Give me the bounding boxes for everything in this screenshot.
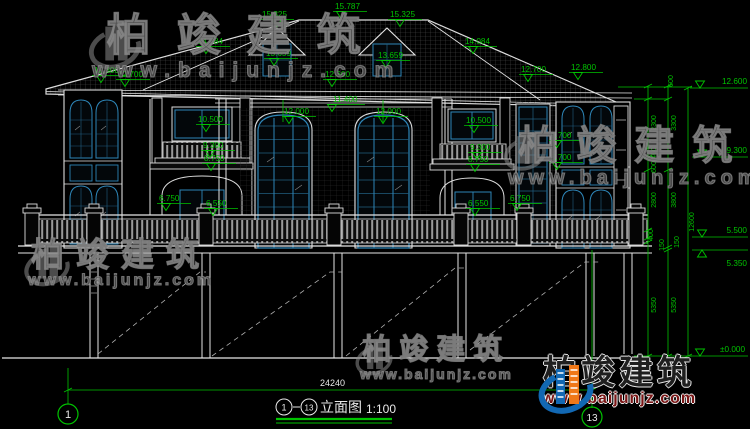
svg-text:6.550: 6.550	[468, 199, 489, 208]
svg-text:15.787: 15.787	[335, 2, 360, 11]
svg-text:5.500: 5.500	[727, 226, 748, 235]
svg-text:10.500: 10.500	[198, 115, 223, 124]
svg-text:24240: 24240	[320, 378, 345, 388]
svg-text:8.700: 8.700	[551, 153, 572, 162]
svg-text:12.600: 12.600	[722, 77, 747, 86]
svg-text:1: 1	[281, 403, 286, 413]
right-edge-elevation-markers: 12.600 9.300 5.500 5.350 ±0.000	[690, 77, 748, 356]
svg-text:8.750: 8.750	[204, 154, 225, 163]
svg-text:1:100: 1:100	[366, 402, 396, 416]
svg-text:13: 13	[305, 404, 314, 413]
svg-text:6.550: 6.550	[206, 199, 227, 208]
terrain-dashed-lines	[98, 262, 600, 356]
svg-text:150: 150	[674, 236, 681, 248]
svg-text:600: 600	[668, 75, 675, 87]
axis-bubble-13: 13	[582, 407, 602, 427]
svg-text:10.500: 10.500	[466, 116, 491, 125]
svg-text:15.325: 15.325	[390, 10, 415, 19]
svg-text:2800: 2800	[651, 192, 658, 208]
svg-text:15.325: 15.325	[262, 10, 287, 19]
svg-text:9.300: 9.300	[470, 143, 491, 152]
svg-text:400: 400	[651, 147, 658, 159]
svg-text:14.084: 14.084	[198, 37, 223, 46]
svg-text:9.300: 9.300	[203, 141, 224, 150]
svg-text:6.750: 6.750	[159, 194, 180, 203]
svg-text:1: 1	[65, 409, 71, 421]
svg-text:600: 600	[651, 161, 658, 173]
svg-text:12600: 12600	[689, 212, 696, 232]
svg-text:11.400: 11.400	[333, 95, 358, 104]
svg-text:13.659: 13.659	[266, 49, 291, 58]
svg-text:5350: 5350	[651, 297, 658, 313]
svg-text:6.750: 6.750	[510, 194, 531, 203]
svg-text:12.000: 12.000	[376, 107, 401, 116]
svg-text:9.700: 9.700	[551, 131, 572, 140]
svg-text:150: 150	[659, 239, 666, 251]
axis-bubble-1: 1	[58, 404, 78, 424]
svg-text:9.300: 9.300	[727, 146, 748, 155]
bottom-dimension: 24240	[64, 250, 596, 408]
svg-text:2300: 2300	[651, 115, 658, 131]
svg-text:12.800: 12.800	[94, 66, 119, 75]
cad-elevation-screenshot: { "colors": { "background": "#000000", "…	[0, 0, 750, 429]
svg-text:3300: 3300	[671, 115, 678, 131]
svg-text:12.700: 12.700	[521, 65, 546, 74]
svg-text:8.750: 8.750	[468, 155, 489, 164]
svg-text:立面图: 立面图	[320, 399, 362, 415]
drawing-title: 1 13 立面图 1:100	[276, 399, 396, 423]
stilt-columns	[90, 253, 632, 358]
svg-text:±0.000: ±0.000	[720, 345, 745, 354]
svg-text:13.659: 13.659	[378, 51, 403, 60]
elevation-drawing-canvas: 15.787 15.325 15.325 14.084 14.084 13.65…	[0, 0, 750, 429]
svg-text:5.350: 5.350	[727, 259, 748, 268]
svg-text:12.800: 12.800	[571, 63, 596, 72]
main-roof	[46, 20, 616, 107]
svg-text:14.084: 14.084	[465, 37, 490, 46]
svg-text:3800: 3800	[671, 192, 678, 208]
svg-text:13: 13	[586, 413, 598, 424]
svg-text:12.600: 12.600	[325, 70, 350, 79]
svg-text:400: 400	[648, 229, 655, 241]
svg-text:12.700: 12.700	[118, 70, 143, 79]
svg-text:12.000: 12.000	[284, 107, 309, 116]
svg-text:5350: 5350	[671, 297, 678, 313]
